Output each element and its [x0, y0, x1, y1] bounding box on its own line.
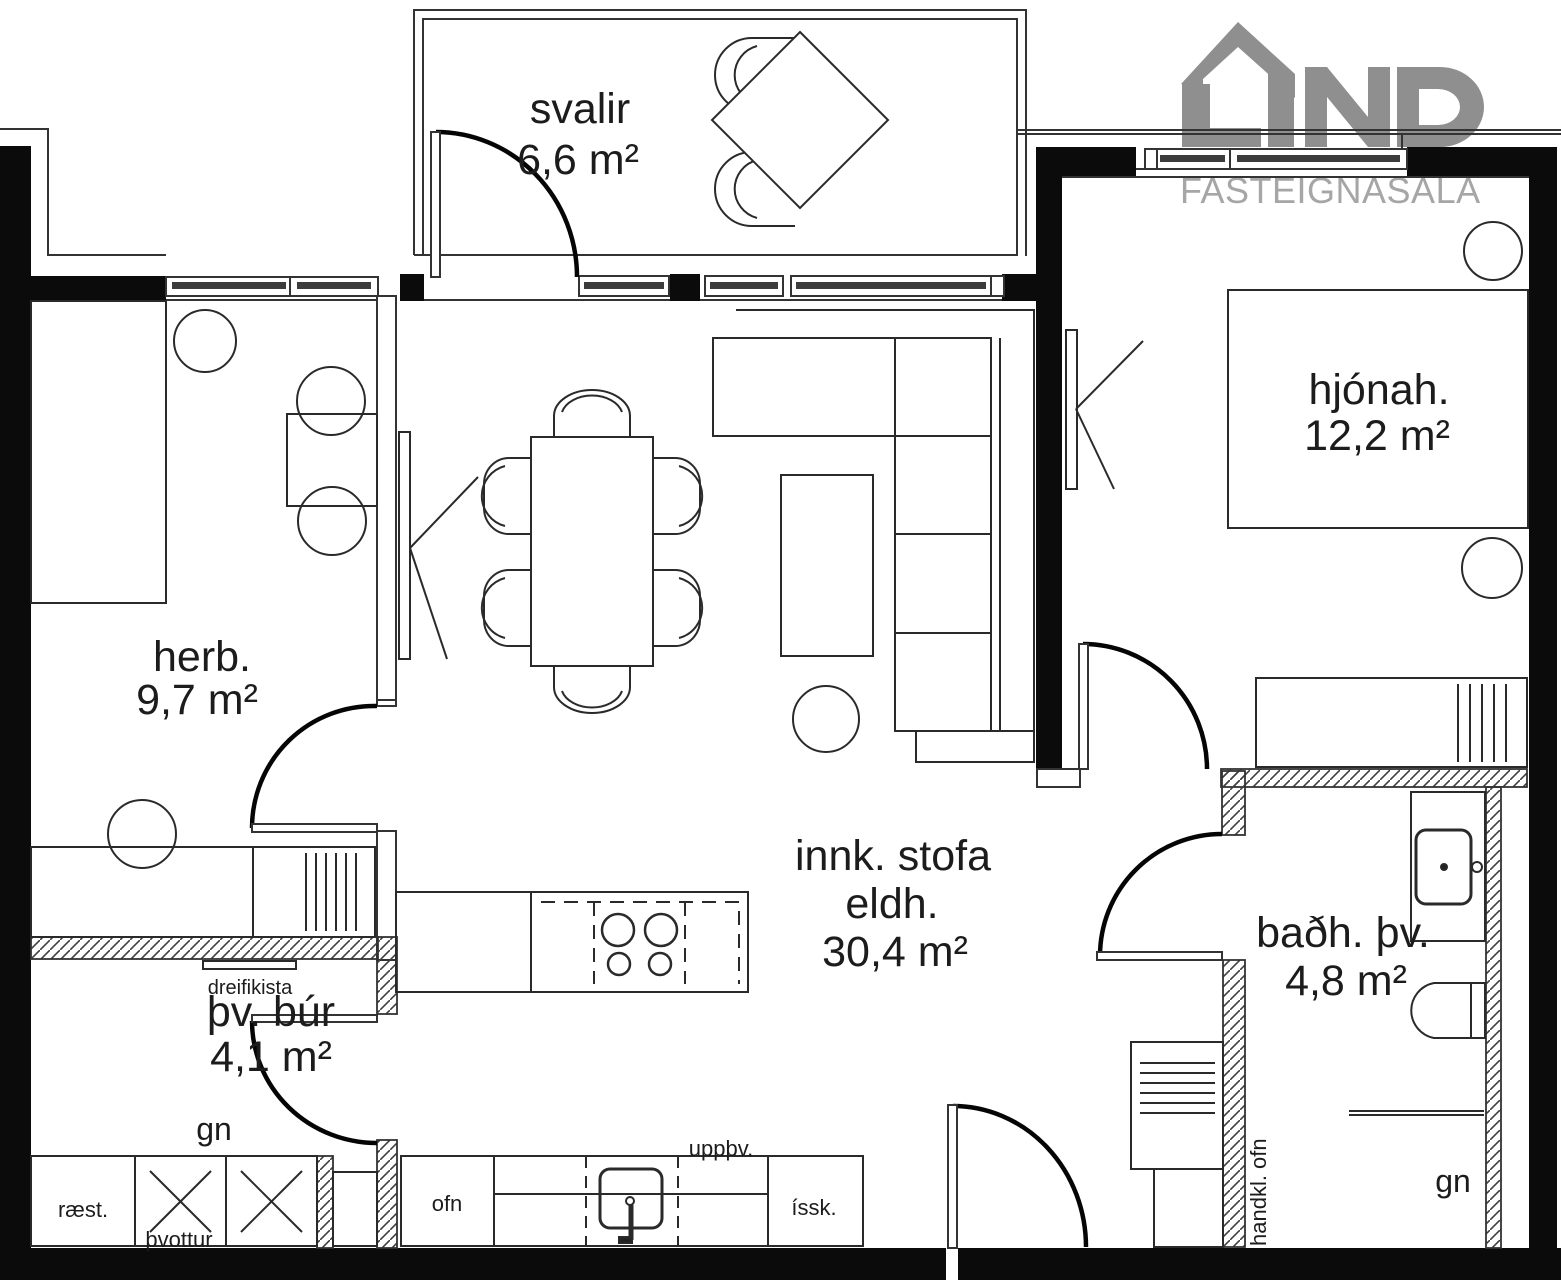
svg-text:handkl. ofn: handkl. ofn — [1246, 1138, 1271, 1246]
svg-text:hjónah.: hjónah. — [1308, 366, 1449, 414]
svg-text:ræst.: ræst. — [58, 1197, 108, 1222]
svg-text:4,8 m²: 4,8 m² — [1285, 957, 1407, 1005]
svg-text:innk. stofa: innk. stofa — [795, 832, 991, 880]
svg-text:gn: gn — [196, 1111, 232, 1147]
svg-text:íssk.: íssk. — [791, 1195, 836, 1220]
svg-text:9,7 m²: 9,7 m² — [136, 676, 258, 724]
svg-text:þvottur: þvottur — [145, 1227, 212, 1252]
svg-text:4,1 m²: 4,1 m² — [210, 1033, 332, 1081]
svg-text:baðh. þv.: baðh. þv. — [1256, 909, 1430, 957]
svg-text:ofn: ofn — [432, 1191, 463, 1216]
svg-text:uppþv.: uppþv. — [689, 1136, 753, 1161]
svg-text:dreifikista: dreifikista — [208, 977, 293, 999]
svg-text:30,4 m²: 30,4 m² — [822, 928, 968, 976]
svg-text:svalir: svalir — [530, 85, 630, 133]
svg-text:gn: gn — [1435, 1163, 1471, 1199]
svg-text:herb.: herb. — [153, 633, 251, 681]
svg-text:6,6 m²: 6,6 m² — [517, 136, 639, 184]
svg-text:eldh.: eldh. — [845, 880, 938, 928]
svg-text:12,2 m²: 12,2 m² — [1304, 412, 1450, 460]
